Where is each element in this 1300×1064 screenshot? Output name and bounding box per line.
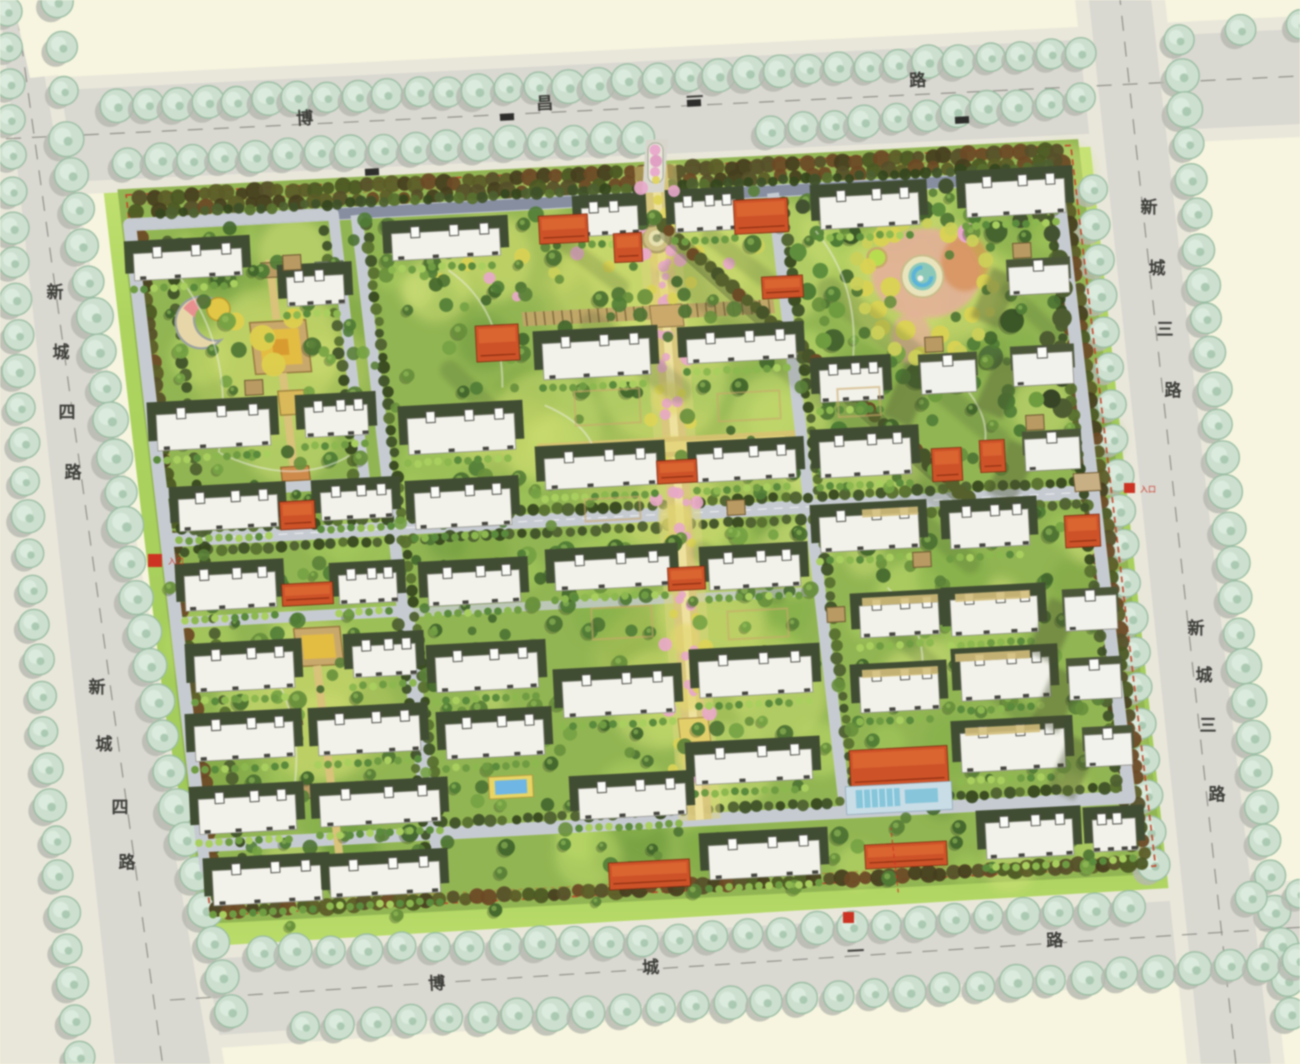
svg-text:路: 路 — [119, 852, 137, 872]
svg-text:入口: 入口 — [1140, 485, 1156, 494]
svg-text:三: 三 — [1157, 320, 1174, 339]
svg-text:新: 新 — [47, 282, 64, 302]
svg-text:一: 一 — [847, 942, 865, 962]
svg-text:四: 四 — [59, 403, 76, 422]
svg-text:城: 城 — [53, 343, 70, 362]
svg-text:城: 城 — [1149, 259, 1166, 278]
svg-text:入口: 入口 — [168, 557, 184, 566]
svg-text:新: 新 — [1141, 197, 1158, 217]
svg-text:城: 城 — [1196, 666, 1213, 685]
svg-text:城: 城 — [642, 958, 660, 978]
svg-text:博: 博 — [296, 108, 314, 129]
svg-text:路: 路 — [1209, 784, 1227, 804]
svg-text:城: 城 — [96, 735, 113, 754]
svg-text:四: 四 — [112, 798, 129, 817]
svg-text:新: 新 — [89, 677, 106, 697]
svg-text:新: 新 — [1188, 618, 1205, 638]
svg-text:路: 路 — [1046, 930, 1065, 951]
svg-text:路: 路 — [909, 70, 928, 91]
svg-text:三: 三 — [1200, 716, 1217, 735]
svg-text:博: 博 — [428, 973, 446, 994]
svg-text:路: 路 — [1165, 380, 1183, 400]
svg-text:昌: 昌 — [536, 94, 554, 114]
svg-text:路: 路 — [65, 462, 83, 482]
